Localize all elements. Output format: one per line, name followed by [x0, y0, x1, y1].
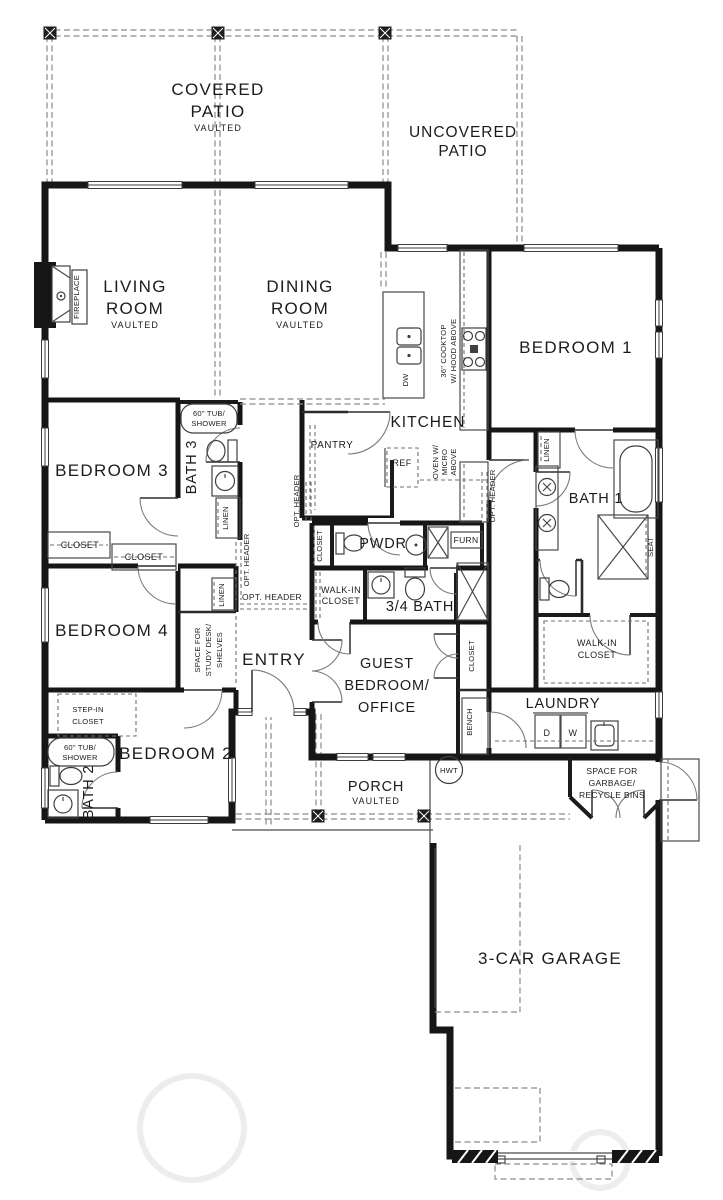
label-uncovered-patio: UNCOVERED	[409, 124, 517, 141]
window	[524, 245, 618, 252]
label-dryer: D	[544, 728, 551, 738]
label-oven: OVEN W/	[431, 444, 440, 479]
label-garage: 3-CAR GARAGE	[478, 949, 622, 968]
floor-plan-canvas: COVERED PATIO VAULTED UNCOVERED PATIO LI…	[0, 0, 723, 1200]
label-bedroom-2: BEDROOM 2	[119, 744, 233, 763]
kitchen-counter-east	[460, 250, 488, 522]
window	[656, 448, 663, 502]
label-bath2-tub: 60" TUB/	[64, 743, 97, 752]
label-covered-patio-2: PATIO	[191, 102, 246, 121]
label-opt-header-1: OPT. HEADER	[242, 533, 251, 586]
window	[656, 300, 663, 326]
label-bath-3: BATH 3	[184, 440, 200, 495]
label-linen-bath1: LINEN	[542, 438, 551, 461]
window	[42, 588, 49, 642]
cooktop	[462, 328, 486, 370]
floor-plan: COVERED PATIO VAULTED UNCOVERED PATIO LI…	[0, 0, 723, 1200]
bath3-sink	[212, 466, 238, 496]
label-guest-walkin-2: CLOSET	[322, 596, 361, 606]
window	[42, 428, 49, 466]
label-bath3-tub-2: SHOWER	[191, 419, 227, 428]
label-washer: W	[569, 728, 578, 738]
label-garbage-space-2: GARBAGE/	[589, 778, 636, 788]
label-porch: PORCH	[348, 779, 404, 795]
label-pantry: PANTRY	[311, 440, 354, 451]
three-quarter-bath-toilet	[405, 568, 425, 600]
window	[42, 340, 49, 378]
label-three-quarter-bath: 3/4 BATH	[386, 599, 454, 615]
label-opt-header-2: OPT. HEADER	[292, 474, 301, 527]
label-bath3-tub: 60" TUB/	[193, 409, 226, 418]
window	[656, 692, 663, 718]
bath1-shower	[598, 515, 648, 579]
bedroom1-door	[575, 430, 613, 468]
window	[337, 754, 368, 761]
label-bedroom-4: BEDROOM 4	[55, 621, 169, 640]
pantry-door	[348, 412, 390, 454]
exterior-walls	[45, 185, 659, 1156]
label-laundry: LAUNDRY	[526, 696, 601, 712]
three-quarter-shower	[457, 563, 488, 620]
garage-details	[435, 845, 659, 1179]
label-cooktop-2: W/ HOOD ABOVE	[449, 319, 458, 384]
three-quarter-bath-sink	[368, 572, 394, 598]
window	[373, 754, 405, 761]
window	[656, 332, 663, 358]
window	[150, 817, 208, 824]
bath2-sink	[48, 790, 78, 818]
label-guest-bedroom-2: BEDROOM/	[344, 678, 430, 694]
label-bench: BENCH	[465, 708, 474, 736]
label-porch-vaulted: VAULTED	[352, 796, 400, 806]
label-dining-room: DINING	[266, 277, 333, 296]
bedroom4-door	[138, 566, 176, 604]
laundry-sink	[591, 721, 618, 750]
label-closet-b: CLOSET	[125, 552, 164, 562]
label-dining-room-vaulted: VAULTED	[276, 320, 324, 330]
label-living-room: LIVING	[103, 277, 167, 296]
label-oven-3: ABOVE	[449, 448, 458, 475]
label-closet-a: CLOSET	[61, 540, 100, 550]
laundry-door	[490, 712, 526, 748]
label-living-room-vaulted: VAULTED	[111, 320, 159, 330]
label-guest-bedroom-3: OFFICE	[358, 700, 416, 716]
sidelite	[238, 709, 252, 716]
window	[255, 182, 348, 189]
label-opt-header-4: OPT. HEADER	[242, 592, 302, 602]
label-uncovered-patio-2: PATIO	[438, 143, 487, 160]
label-closet-coat: CLOSET	[315, 530, 324, 562]
watermark	[140, 1076, 628, 1188]
label-kitchen: KITCHEN	[390, 414, 465, 431]
bath2-toilet	[50, 766, 82, 786]
bedroom3-door	[140, 498, 178, 536]
step-in-closet	[58, 694, 136, 736]
label-closet-guest-hall: CLOSET	[467, 640, 476, 672]
label-guest-bedroom: GUEST	[360, 656, 414, 672]
label-dining-room-2: ROOM	[271, 299, 329, 318]
label-powder-room: PWDR	[359, 536, 407, 552]
window	[229, 758, 236, 802]
window	[398, 245, 447, 252]
label-fireplace: FIREPLACE	[72, 275, 81, 319]
label-living-room-2: ROOM	[106, 299, 164, 318]
label-main-walkin: WALK-IN	[577, 638, 617, 648]
window	[88, 182, 182, 189]
hall-closet-doors	[434, 634, 458, 678]
label-garbage-space: SPACE FOR	[586, 766, 637, 776]
label-oven-2: MICRO	[440, 449, 449, 475]
label-cooktop: 36" COOKTOP	[439, 324, 448, 377]
label-covered-patio-vaulted: VAULTED	[194, 123, 242, 133]
sidelite	[294, 709, 306, 716]
label-bedroom-1: BEDROOM 1	[519, 338, 633, 357]
label-step-in-closet: STEP-IN	[72, 705, 103, 714]
label-study-niche-2: STUDY DESK/	[204, 623, 213, 676]
label-bath-1: BATH 1	[569, 491, 624, 507]
label-linen-bath3: LINEN	[221, 506, 230, 529]
label-furnace: FURN	[454, 535, 479, 545]
front-door	[252, 670, 294, 712]
label-shower-seat: SEAT	[646, 537, 655, 557]
bath1-door	[536, 472, 570, 506]
label-step-in-closet-2: CLOSET	[72, 717, 104, 726]
label-study-niche: SPACE FOR	[193, 627, 202, 672]
patio-posts	[44, 27, 391, 39]
bedroom2-door	[184, 690, 222, 728]
label-water-heater: HWT	[440, 766, 458, 775]
label-bath-2: BATH 2	[81, 765, 97, 820]
label-main-walkin-2: CLOSET	[578, 650, 617, 660]
label-dishwasher: DW	[401, 373, 410, 387]
label-bath2-tub-2: SHOWER	[62, 753, 98, 762]
label-garbage-space-3: RECYCLE BINS	[579, 790, 645, 800]
guest-walkin-shelves	[316, 572, 320, 618]
label-linen-entry: LINEN	[217, 583, 226, 606]
porch-posts	[312, 810, 430, 822]
label-bedroom-3: BEDROOM 3	[55, 461, 169, 480]
label-covered-patio: COVERED	[171, 80, 264, 99]
label-study-niche-3: SHELVES	[215, 632, 224, 668]
landing-door	[659, 762, 697, 800]
label-opt-header-3: OPT. HEADER	[488, 469, 497, 522]
label-guest-walkin: WALK-IN	[321, 585, 361, 595]
label-refrigerator: REF	[392, 458, 411, 468]
label-entry: ENTRY	[242, 650, 306, 669]
